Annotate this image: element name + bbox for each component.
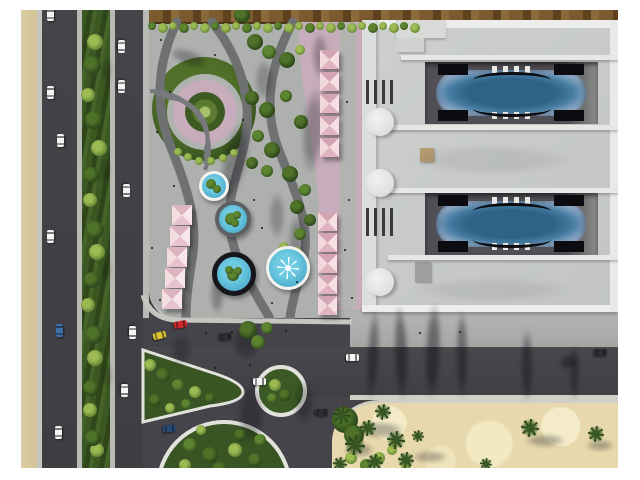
hedge-bush bbox=[389, 23, 399, 33]
car bbox=[129, 326, 136, 339]
palm-tree bbox=[345, 435, 365, 455]
bush bbox=[89, 244, 105, 260]
palm-tree bbox=[375, 404, 391, 420]
car bbox=[123, 184, 130, 197]
roof-ridge bbox=[388, 255, 618, 260]
hedge-bush bbox=[316, 22, 324, 30]
tree bbox=[259, 102, 275, 118]
beach-umbrella bbox=[170, 226, 190, 246]
tree bbox=[252, 130, 264, 142]
tree bbox=[279, 389, 291, 401]
courtyard-pavilion bbox=[438, 64, 468, 75]
bush bbox=[295, 45, 305, 55]
hedge-bush bbox=[200, 23, 210, 33]
pool-plant bbox=[234, 267, 242, 275]
courtyard-pavilion bbox=[438, 241, 468, 252]
bush bbox=[144, 359, 156, 371]
tree bbox=[247, 34, 263, 50]
palm-tree bbox=[333, 457, 347, 468]
cast-shadow bbox=[171, 335, 191, 365]
hedge-bush bbox=[400, 22, 408, 30]
cast-shadow bbox=[100, 157, 110, 183]
bush bbox=[87, 350, 103, 366]
tree bbox=[304, 214, 316, 226]
car bbox=[253, 378, 266, 385]
cast-shadow bbox=[102, 362, 112, 388]
beach-umbrella bbox=[162, 289, 182, 309]
bush bbox=[184, 153, 192, 161]
pool-plant bbox=[213, 185, 221, 193]
tree bbox=[294, 228, 306, 240]
car bbox=[47, 230, 54, 243]
cast-shadow bbox=[411, 278, 571, 302]
cast-shadow bbox=[294, 380, 314, 425]
tree bbox=[248, 453, 262, 467]
car bbox=[173, 319, 187, 328]
pool-plant bbox=[233, 211, 241, 219]
tree bbox=[294, 115, 308, 129]
car bbox=[118, 80, 125, 93]
car bbox=[162, 424, 176, 432]
cast-shadow bbox=[456, 310, 468, 398]
tree bbox=[156, 368, 170, 382]
hedge-bush bbox=[358, 22, 366, 30]
hedge-bush bbox=[326, 23, 336, 33]
hedge-bush bbox=[190, 22, 198, 30]
bush bbox=[174, 148, 182, 156]
hedge-bush bbox=[253, 22, 261, 30]
courtyard-pavilion bbox=[438, 195, 468, 206]
bush bbox=[91, 140, 107, 156]
beach-umbrella bbox=[167, 247, 187, 267]
roof-ridge bbox=[401, 55, 618, 60]
hedge-bush bbox=[295, 22, 303, 30]
beach-umbrella bbox=[318, 296, 337, 315]
beach-umbrella bbox=[320, 50, 339, 69]
tree bbox=[251, 335, 265, 349]
tree bbox=[261, 322, 273, 334]
car bbox=[55, 426, 62, 439]
beach-umbrella bbox=[320, 94, 339, 113]
hedge-bush bbox=[242, 23, 252, 33]
tree bbox=[262, 45, 276, 59]
tree bbox=[85, 430, 101, 446]
facade-fins bbox=[366, 208, 393, 236]
palm-tree bbox=[387, 431, 405, 449]
tree bbox=[149, 394, 161, 406]
cast-shadow bbox=[412, 451, 448, 463]
hedge-bush bbox=[410, 23, 420, 33]
beach-umbrella bbox=[320, 72, 339, 91]
bush bbox=[269, 379, 281, 391]
facade-fins bbox=[366, 80, 393, 104]
palm-tree bbox=[360, 420, 376, 436]
pool-shade-arc bbox=[473, 231, 551, 248]
tree bbox=[246, 157, 258, 169]
facade-tower bbox=[366, 169, 394, 197]
tree bbox=[83, 167, 99, 183]
tree bbox=[280, 90, 292, 102]
beach-umbrella bbox=[320, 116, 339, 135]
car bbox=[56, 324, 63, 337]
hedge-bush bbox=[284, 23, 294, 33]
tree bbox=[183, 438, 197, 452]
beach-umbrella bbox=[318, 233, 337, 252]
fountain-pool bbox=[212, 252, 256, 296]
courtyard-pavilion bbox=[554, 64, 584, 75]
pool-plant bbox=[225, 266, 233, 274]
bush bbox=[228, 443, 242, 457]
hedge-bush bbox=[232, 22, 240, 30]
hedge-bush bbox=[368, 23, 378, 33]
beach-umbrella bbox=[172, 205, 192, 225]
tree bbox=[84, 272, 100, 288]
palm-tree bbox=[367, 454, 383, 468]
tree bbox=[172, 379, 184, 391]
bush bbox=[179, 459, 191, 468]
pool-plant bbox=[231, 219, 239, 227]
hedge-bush bbox=[211, 22, 219, 30]
car bbox=[57, 134, 64, 147]
palm-tree bbox=[412, 430, 424, 442]
building-setback-b bbox=[396, 38, 424, 52]
tree bbox=[205, 393, 215, 403]
tree bbox=[202, 447, 218, 463]
pool-courtyard bbox=[425, 193, 598, 255]
car bbox=[346, 354, 359, 361]
beach-umbrella bbox=[165, 268, 185, 288]
pink-zone-walk bbox=[340, 22, 356, 310]
pool-shade-arc bbox=[473, 72, 551, 89]
hedge-bush bbox=[179, 23, 189, 33]
hedge-bush bbox=[148, 22, 156, 30]
cast-shadow bbox=[411, 145, 571, 175]
tree bbox=[264, 142, 280, 158]
tree bbox=[254, 434, 266, 446]
car bbox=[118, 40, 125, 53]
car bbox=[594, 349, 607, 356]
tree bbox=[290, 200, 304, 214]
building-right-edge bbox=[610, 20, 618, 312]
beach-umbrella bbox=[320, 138, 339, 157]
hedge-bush bbox=[169, 22, 177, 30]
palm-tree bbox=[588, 426, 604, 442]
tree bbox=[299, 184, 311, 196]
courtyard-pavilion bbox=[438, 110, 468, 121]
fountain-pool bbox=[215, 201, 251, 237]
tree bbox=[85, 326, 103, 344]
render-canvas bbox=[0, 0, 640, 480]
courtyard-pavilion bbox=[554, 195, 584, 206]
bush bbox=[83, 193, 97, 207]
palm-tree bbox=[521, 419, 539, 437]
car bbox=[315, 409, 328, 416]
beach-umbrella bbox=[318, 212, 337, 231]
hedge-bush bbox=[379, 22, 387, 30]
pool-shade-arc bbox=[473, 203, 551, 220]
tree bbox=[245, 91, 259, 105]
tree bbox=[83, 56, 101, 74]
bush bbox=[165, 403, 175, 413]
bush bbox=[196, 425, 206, 435]
car bbox=[47, 86, 54, 99]
hedge-bush bbox=[221, 23, 231, 33]
cast-shadow bbox=[102, 57, 112, 83]
courtyard-pavilion bbox=[554, 241, 584, 252]
cast-shadow bbox=[586, 440, 614, 451]
bush bbox=[207, 157, 215, 165]
courtyard-pavilion bbox=[554, 110, 584, 121]
bush bbox=[81, 298, 95, 312]
pool-courtyard bbox=[425, 62, 598, 124]
cast-shadow bbox=[269, 193, 285, 238]
bush bbox=[219, 154, 227, 162]
pool-shade-arc bbox=[473, 100, 551, 117]
palm-tree bbox=[333, 406, 351, 424]
beach-umbrella bbox=[318, 254, 337, 273]
car bbox=[121, 384, 128, 397]
tree bbox=[83, 380, 99, 396]
facade-tower bbox=[366, 108, 394, 136]
roof-annex-gray bbox=[415, 262, 431, 282]
beach-umbrella bbox=[318, 275, 337, 294]
bush bbox=[83, 403, 97, 417]
south-green-circle bbox=[158, 422, 290, 468]
hedge-bush bbox=[274, 22, 282, 30]
tree bbox=[234, 429, 246, 441]
bush bbox=[189, 386, 201, 398]
hedge-bush bbox=[263, 23, 273, 33]
cast-shadow bbox=[101, 257, 111, 283]
cast-shadow bbox=[559, 355, 577, 369]
tree bbox=[267, 393, 277, 403]
car bbox=[218, 332, 232, 340]
tree bbox=[282, 166, 298, 182]
tree bbox=[86, 221, 104, 239]
car bbox=[47, 10, 54, 21]
palm-tree bbox=[480, 458, 492, 468]
cast-shadow bbox=[521, 329, 533, 401]
tree bbox=[279, 52, 295, 68]
roof-ridge bbox=[388, 125, 618, 130]
fountain-pool bbox=[199, 171, 229, 201]
hedge-bush bbox=[305, 23, 315, 33]
bush bbox=[230, 149, 238, 157]
hedge-bush bbox=[158, 23, 168, 33]
palm-tree bbox=[398, 452, 414, 468]
site-plan-scene bbox=[21, 10, 618, 468]
bush bbox=[195, 157, 203, 165]
cast-shadow bbox=[570, 345, 579, 400]
bush bbox=[81, 88, 95, 102]
fountain-pool bbox=[266, 246, 310, 290]
tree bbox=[181, 399, 191, 409]
fountain-jet bbox=[277, 257, 300, 280]
tree bbox=[261, 165, 273, 177]
bush bbox=[87, 34, 103, 50]
hedge-bush bbox=[347, 23, 357, 33]
tree bbox=[85, 111, 103, 129]
hedge-bush bbox=[337, 22, 345, 30]
facade-tower bbox=[366, 268, 394, 296]
